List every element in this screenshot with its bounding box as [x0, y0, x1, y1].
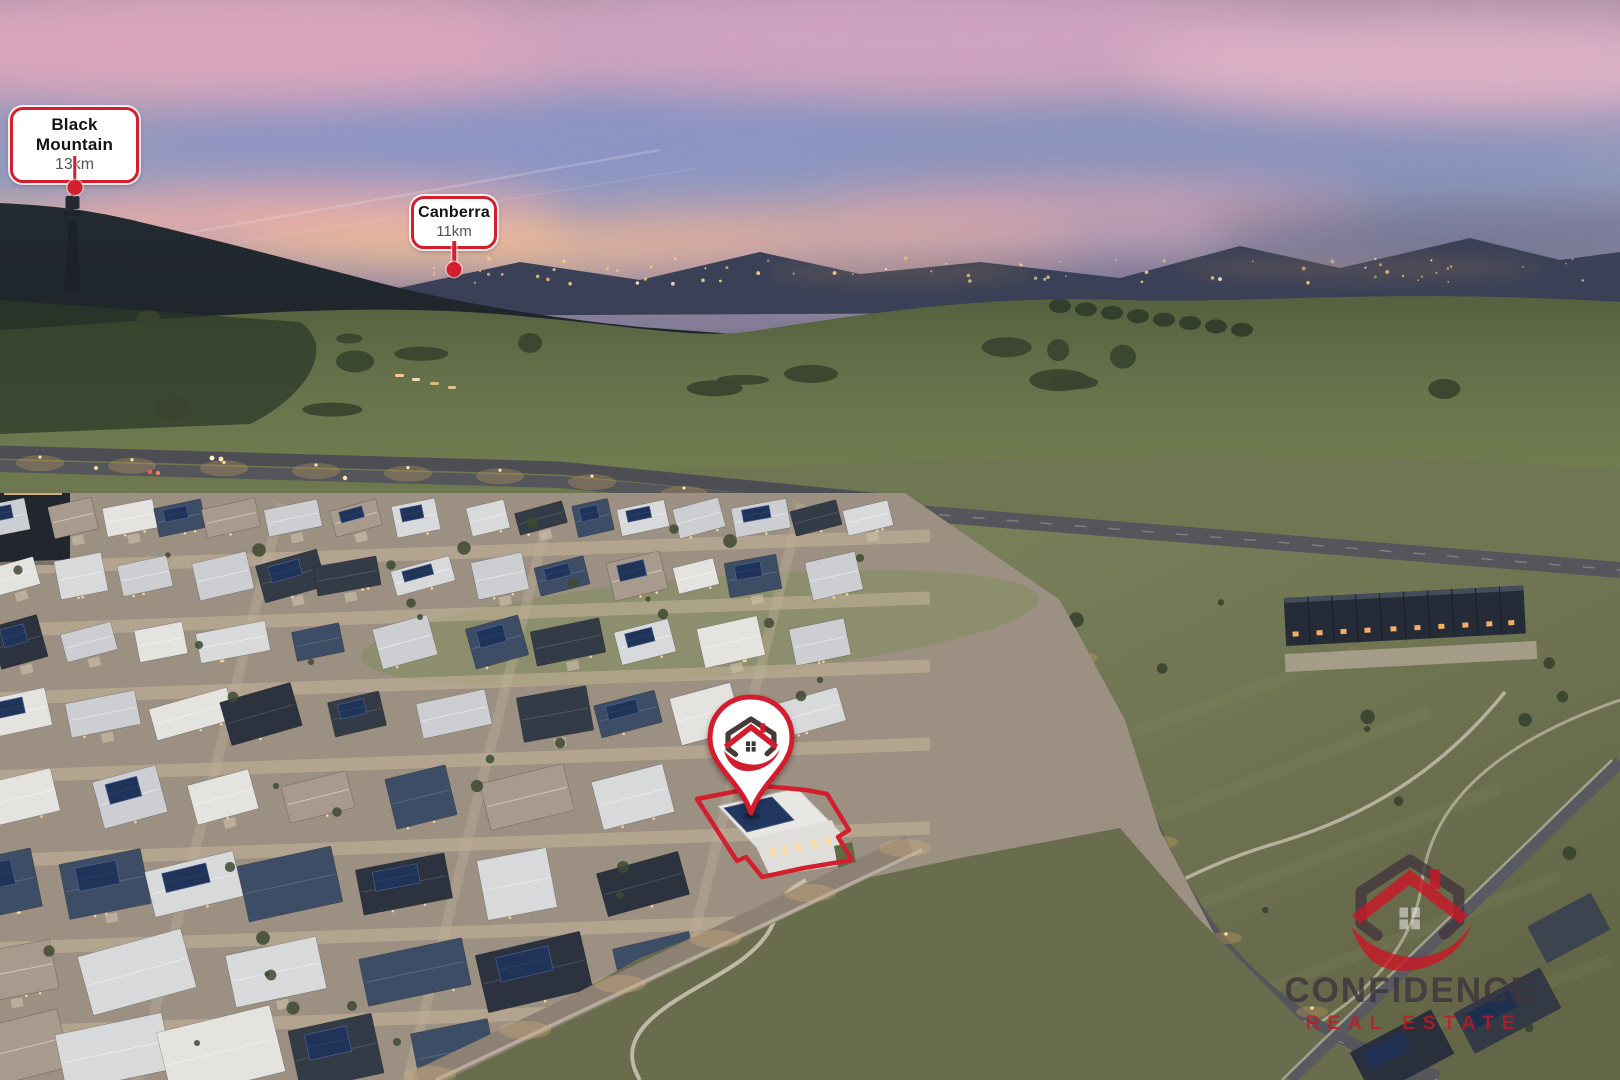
canberra-distance-label: Canberra 11km	[411, 196, 497, 249]
green-hills	[0, 296, 1620, 472]
photo-canvas	[0, 0, 1620, 1080]
landmark-distance: 11km	[418, 223, 490, 240]
label-stem	[73, 156, 77, 181]
aerial-property-photo: Black Mountain 13km Canberra 11km CONFID…	[0, 0, 1620, 1080]
label-marker-dot	[67, 180, 82, 195]
townhouse-row	[1282, 585, 1538, 672]
label-marker-dot	[447, 262, 462, 277]
landmark-name: Canberra	[418, 204, 490, 222]
black-mountain-distance-label: Black Mountain 13km	[10, 107, 139, 183]
landmark-name: Black Mountain	[17, 115, 132, 155]
label-stem	[452, 241, 456, 264]
